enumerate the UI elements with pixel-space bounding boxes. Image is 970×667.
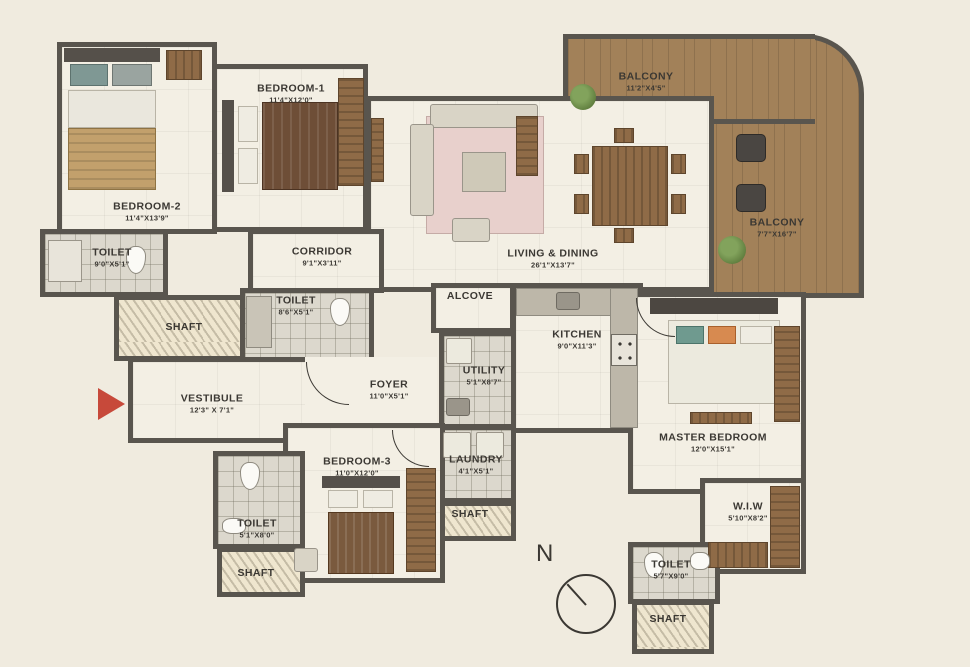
kitchen-sink (556, 292, 580, 310)
bed-blanket (328, 512, 394, 574)
bed-sheet (68, 90, 156, 128)
room-shaft-master (632, 600, 714, 654)
wardrobe (406, 468, 436, 572)
utility-sink (446, 398, 470, 416)
room-name: LAUNDRY (449, 455, 503, 467)
cabinet (516, 116, 538, 176)
room-label-kitchen: KITCHEN 9'0"X11'3" (552, 330, 601, 351)
room-label-living-dining: LIVING & DINING 26'1"X13'7" (507, 249, 598, 270)
dining-chair (671, 154, 686, 174)
room-label-balcony-top: BALCONY 11'2"X4'5" (619, 72, 674, 93)
room-label-wiw: W.I.W 5'10"X8'2" (728, 502, 768, 523)
bed-headboard (222, 100, 234, 192)
room-dims: 5'1"X8'7" (463, 377, 505, 386)
washing-machine (446, 338, 472, 364)
room-name: W.I.W (728, 502, 768, 514)
bed-pillow (70, 64, 108, 86)
room-name: CORRIDOR (292, 247, 352, 259)
dining-chair (574, 154, 589, 174)
compass-icon (556, 574, 616, 634)
room-label-master-bedroom: MASTER BEDROOM 12'0"X15'1" (659, 433, 767, 454)
room-label-toilet-b3: TOILET 5'1"X8'0" (237, 519, 277, 540)
room-dims: 11'2"X4'5" (619, 83, 674, 92)
balcony-chair (736, 184, 766, 212)
wardrobe (338, 78, 364, 186)
plant (570, 84, 596, 110)
room-dims: 5'7"X9'0" (651, 571, 691, 580)
bed-headboard (64, 48, 160, 62)
room-name: SHAFT (166, 322, 203, 334)
room-dims: 9'1"X3'11" (292, 258, 352, 267)
dining-chair (614, 128, 634, 143)
room-name: TOILET (651, 560, 691, 572)
room-shaft-laundry (436, 501, 516, 541)
room-label-shaft-left: SHAFT (166, 322, 203, 334)
bed-pillow (676, 326, 704, 344)
room-name: LIVING & DINING (507, 249, 598, 261)
bed-pillow (328, 490, 358, 508)
room-dims: 11'0"X5'1" (369, 391, 408, 400)
room-label-bedroom1: BEDROOM-1 11'4"X12'0" (257, 84, 325, 105)
room-dims: 11'4"X12'0" (257, 95, 325, 104)
room-dims: 11'4"X13'9" (113, 213, 181, 222)
dining-chair (574, 194, 589, 214)
room-label-corridor: CORRIDOR 9'1"X3'11" (292, 247, 352, 268)
room-name: MASTER BEDROOM (659, 433, 767, 445)
wiw-wardrobe (770, 486, 800, 568)
room-dims: 4'1"X5'1" (449, 466, 503, 475)
room-name: SHAFT (650, 614, 687, 626)
sink (690, 552, 710, 570)
wiw-wardrobe (708, 542, 768, 568)
room-dims: 5'10"X8'2" (728, 513, 768, 522)
room-name: UTILITY (463, 366, 505, 378)
room-name: BALCONY (750, 218, 805, 230)
room-label-shaft-laundry: SHAFT (452, 509, 489, 521)
room-label-balcony-right: BALCONY 7'7"X16'7" (750, 218, 805, 239)
armchair (452, 218, 490, 242)
room-dims: 9'0"X5'1" (92, 259, 132, 268)
bed-blanket (262, 102, 338, 190)
room-label-utility: UTILITY 5'1"X8'7" (463, 366, 505, 387)
room-label-laundry: LAUNDRY 4'1"X5'1" (449, 455, 503, 476)
dining-table (592, 146, 668, 226)
compass-north-label: N (536, 540, 553, 568)
room-label-toilet-corridor: TOILET 8'6"X5'1" (276, 296, 316, 317)
floor-plan: N BEDROOM-2 11'4"X13'9" BEDROOM-1 11'4"X… (0, 0, 970, 667)
nightstand (166, 50, 202, 80)
bed-pillow (112, 64, 152, 86)
bed-pillow (363, 490, 393, 508)
room-dims: 5'1"X8'0" (237, 530, 277, 539)
room-name: SHAFT (452, 509, 489, 521)
bed-pillow (708, 326, 736, 344)
room-name: TOILET (237, 519, 277, 531)
room-name: ALCOVE (447, 291, 493, 303)
plant (718, 236, 746, 264)
room-name: TOILET (276, 296, 316, 308)
chair (294, 548, 318, 572)
room-label-toilet-b2: TOILET 9'0"X5'1" (92, 248, 132, 269)
room-name: FOYER (369, 380, 408, 392)
room-label-vestibule: VESTIBULE 12'3" X 7'1" (181, 394, 244, 415)
bed-pillow (740, 326, 772, 344)
room-dims: 12'3" X 7'1" (181, 405, 244, 414)
dining-chair (671, 194, 686, 214)
entry-arrow-icon (98, 388, 125, 420)
room-dims: 8'6"X5'1" (276, 307, 316, 316)
dining-chair (614, 228, 634, 243)
room-name: SHAFT (238, 568, 275, 580)
vanity (246, 296, 272, 348)
shower (48, 240, 82, 282)
wardrobe (774, 326, 800, 422)
room-dims: 12'0"X15'1" (659, 444, 767, 453)
bed-headboard (322, 476, 400, 488)
balcony-chair (736, 134, 766, 162)
tv-unit (371, 118, 384, 182)
sofa (410, 124, 434, 216)
room-name: BEDROOM-2 (113, 202, 181, 214)
room-name: BEDROOM-3 (323, 457, 391, 469)
room-label-shaft-master: SHAFT (650, 614, 687, 626)
coffee-table (462, 152, 506, 192)
room-label-alcove: ALCOVE (447, 291, 493, 303)
room-label-bedroom2: BEDROOM-2 11'4"X13'9" (113, 202, 181, 223)
room-dims: 7'7"X16'7" (750, 229, 805, 238)
room-name: BALCONY (619, 72, 674, 84)
room-name: VESTIBULE (181, 394, 244, 406)
room-label-shaft-b3: SHAFT (238, 568, 275, 580)
room-name: BEDROOM-1 (257, 84, 325, 96)
compass-needle (567, 584, 587, 606)
room-dims: 9'0"X11'3" (552, 341, 601, 350)
room-dims: 26'1"X13'7" (507, 260, 598, 269)
room-name: TOILET (92, 248, 132, 260)
room-label-bedroom3: BEDROOM-3 11'0"X12'0" (323, 457, 391, 478)
room-label-foyer: FOYER 11'0"X5'1" (369, 380, 408, 401)
room-dims: 11'0"X12'0" (323, 468, 391, 477)
room-label-toilet-master: TOILET 5'7"X9'0" (651, 560, 691, 581)
bed-pillow (238, 148, 258, 184)
bed-pillow (238, 106, 258, 142)
stove (611, 334, 637, 366)
room-name: KITCHEN (552, 330, 601, 342)
bed-bench (690, 412, 752, 424)
bed-blanket (68, 128, 156, 190)
